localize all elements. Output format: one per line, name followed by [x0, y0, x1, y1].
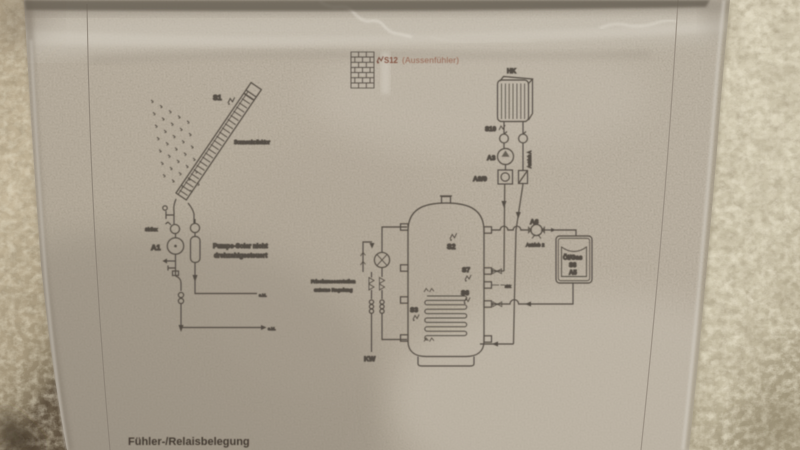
svg-text:zirk: zirk — [505, 285, 511, 289]
svg-text:S1: S1 — [213, 95, 222, 102]
svg-text:A6: A6 — [530, 219, 539, 226]
svg-text:Pumpe-Solar nicht: Pumpe-Solar nicht — [213, 243, 268, 250]
svg-text:A3: A3 — [487, 155, 496, 162]
svg-text:drehzahlgesteuert: drehzahlgesteuert — [214, 253, 267, 260]
svg-text:S8: S8 — [569, 263, 577, 269]
svg-text:Sirflux: Sirflux — [145, 227, 158, 232]
svg-text:Fühler-/Relaisbelegung: Fühler-/Relaisbelegung — [128, 436, 250, 448]
svg-text:Sonnenkollektor: Sonnenkollektor — [234, 140, 270, 146]
svg-text:A8/9: A8/9 — [473, 176, 487, 183]
svg-text:s.M.: s.M. — [268, 326, 276, 331]
svg-text:(Aussenfühler): (Aussenfühler) — [402, 55, 459, 65]
svg-text:A5: A5 — [569, 271, 577, 277]
svg-text:A1: A1 — [151, 243, 161, 252]
svg-text:Frischwasserstation: Frischwasserstation — [311, 279, 356, 284]
svg-text:S7: S7 — [462, 267, 470, 274]
svg-text:Öl/Gas: Öl/Gas — [563, 255, 583, 262]
svg-text:S2: S2 — [447, 244, 456, 251]
svg-text:S3: S3 — [410, 307, 418, 314]
svg-text:Antrieb 2: Antrieb 2 — [526, 243, 545, 248]
svg-text:HK: HK — [507, 68, 516, 75]
svg-text:S12: S12 — [384, 56, 399, 65]
svg-text:KW: KW — [364, 356, 376, 363]
svg-text:Antrieb A: Antrieb A — [527, 151, 532, 168]
svg-text:externe Regelung: externe Regelung — [314, 288, 353, 293]
svg-text:S10: S10 — [485, 126, 497, 133]
svg-text:s.M.: s.M. — [259, 293, 267, 298]
